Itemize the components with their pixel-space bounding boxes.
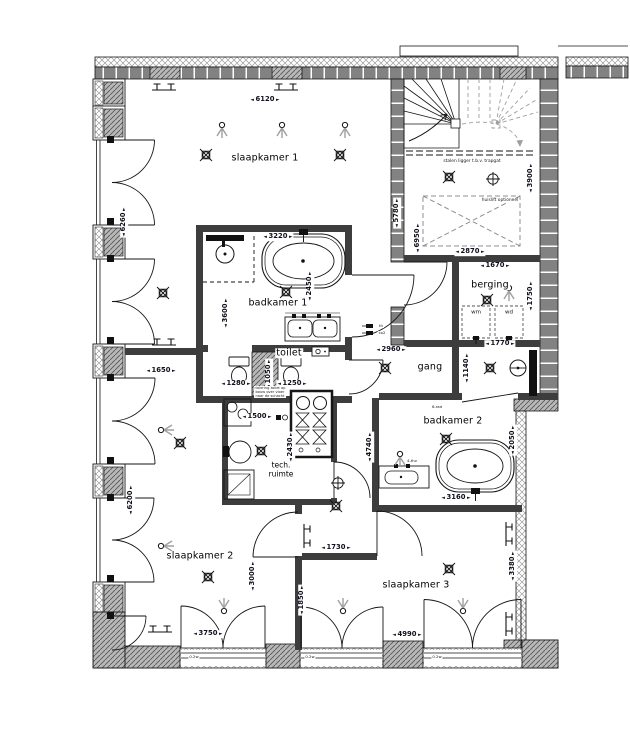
dim-4740: 4740 <box>366 431 374 462</box>
door-badkamer2 <box>462 393 518 402</box>
note-huislift: huislift optioneel <box>481 199 520 203</box>
ceiling-light-icon <box>280 286 292 298</box>
ceiling-light-icon <box>481 294 493 306</box>
room-label-toilet: toilet <box>275 348 303 358</box>
dim-1750: 1750 <box>527 280 535 311</box>
dim-3220: 3220 <box>262 233 293 241</box>
dim-1770: 1770 <box>484 340 515 348</box>
label-wm: wm <box>470 310 482 316</box>
round-light-icon <box>331 476 345 490</box>
dim-2430: 2430 <box>287 431 295 462</box>
pendant-light-icon <box>458 598 468 614</box>
dim-6950: 6950 <box>414 222 422 253</box>
label-4thv: 4-thv <box>406 459 418 463</box>
note-riolering: riolering toilet op bouw over vloer naar… <box>254 386 286 398</box>
pendant-light-icon <box>277 122 287 138</box>
floor-plan: slaapkamer 1 badkamer 1 toilet gang berg… <box>0 0 630 729</box>
dim-1850: 1850 <box>298 584 306 615</box>
shower-icon <box>203 235 254 282</box>
label-th: th <box>378 324 384 328</box>
room-label-slaapkamer-3: slaapkamer 3 <box>382 580 451 590</box>
door-closet <box>404 262 447 305</box>
dim-2050: 2050 <box>509 424 517 455</box>
vent-shaft-icon <box>291 391 332 457</box>
label-6rad: 6-rad <box>431 405 443 409</box>
label-02w: 0.2w <box>188 655 199 659</box>
dim-4990: 4990 <box>391 631 422 639</box>
upper-flight-dashed <box>462 79 538 142</box>
room-label-berging: berging <box>470 280 510 290</box>
label-wd: wd <box>504 310 514 316</box>
room-label-slaapkamer-1: slaapkamer 1 <box>231 153 300 163</box>
ceiling-light-icon <box>443 171 455 183</box>
room-label-badkamer-1: badkamer 1 <box>247 298 308 308</box>
heater-icon <box>510 350 537 396</box>
sensor-icons <box>362 324 373 335</box>
washbasin2-icon <box>379 464 429 488</box>
ceiling-light-icon <box>379 362 391 374</box>
ceiling-light-icon <box>157 287 169 299</box>
dim-3380: 3380 <box>509 550 517 581</box>
ceiling-light-icon <box>440 433 452 445</box>
room-label-badkamer-2: badkamer 2 <box>422 416 483 426</box>
radiator-icon <box>274 84 298 90</box>
label-02w: 0.2w <box>304 655 315 659</box>
pendant-light-icon <box>217 122 227 138</box>
radiator-icon <box>304 524 310 548</box>
pendant-light-icon <box>340 122 350 138</box>
bathtub2-icon <box>436 440 514 501</box>
tap-icon <box>276 415 288 420</box>
dim-1650: 1650 <box>145 367 176 375</box>
outer-walls <box>93 46 628 668</box>
vent-box-icon <box>312 347 329 356</box>
ceiling-light-icon <box>200 149 212 161</box>
door-toilet <box>349 360 383 394</box>
radiator-icon <box>148 626 172 632</box>
dim-2960: 2960 <box>375 346 406 354</box>
dim-1670: 1670 <box>479 262 510 270</box>
dim-1050: 1050 <box>265 358 273 389</box>
door-slaapkamer3 <box>377 511 422 556</box>
dim-1280: 1280 <box>220 380 251 388</box>
dim-6200: 6200 <box>127 484 135 515</box>
door-slaapkamer2 <box>253 512 298 557</box>
dim-6260: 6260 <box>120 206 128 237</box>
huislift-outline <box>423 196 520 246</box>
round-light-icon <box>486 172 500 186</box>
radiator-icon <box>506 522 512 546</box>
label-co2: co2 <box>378 331 387 335</box>
dim-6120: 6120 <box>249 96 280 104</box>
dim-1730: 1730 <box>320 544 351 552</box>
radiator-icon <box>506 612 512 636</box>
dim-5780: 5780 <box>393 197 401 228</box>
ceiling-light-icon <box>330 500 342 512</box>
note-stalen-ligger: stalen ligger t.b.v. trapgat <box>442 160 501 164</box>
pendant-light-icon <box>338 598 348 614</box>
room-label-gang: gang <box>417 362 444 372</box>
dim-2870: 2870 <box>454 248 485 256</box>
washbasin-icon <box>285 313 340 341</box>
ceiling-light-icon <box>334 149 346 161</box>
radiator-icon <box>152 339 176 345</box>
radiator-icon <box>152 84 176 90</box>
steel-beam-dashed-line <box>406 151 536 155</box>
ceiling-light-icon <box>484 362 496 374</box>
room-label-ruimte: ruimte <box>268 470 295 478</box>
dim-3900: 3900 <box>527 162 535 193</box>
room-label-slaapkamer-2: slaapkamer 2 <box>166 551 235 561</box>
pendant-light-icon <box>219 598 229 614</box>
ceiling-light-icon <box>255 445 267 457</box>
hinge-blocks <box>107 136 114 619</box>
dim-3000: 3000 <box>249 560 257 591</box>
pendant-light-icon <box>158 425 174 435</box>
dim-3160: 3160 <box>440 494 471 502</box>
dim-2450: 2450 <box>306 270 314 301</box>
ceiling-light-icon <box>174 437 186 449</box>
label-02w: 0.2w <box>431 655 442 659</box>
dim-3600: 3600 <box>222 297 230 328</box>
dim-1140: 1140 <box>463 352 471 383</box>
ceiling-light-icon <box>443 563 455 575</box>
dim-3750: 3750 <box>192 630 223 638</box>
dim-1500: 1500 <box>241 413 272 421</box>
ceiling-light-icon <box>202 571 214 583</box>
floorplan-drawing <box>0 0 630 729</box>
